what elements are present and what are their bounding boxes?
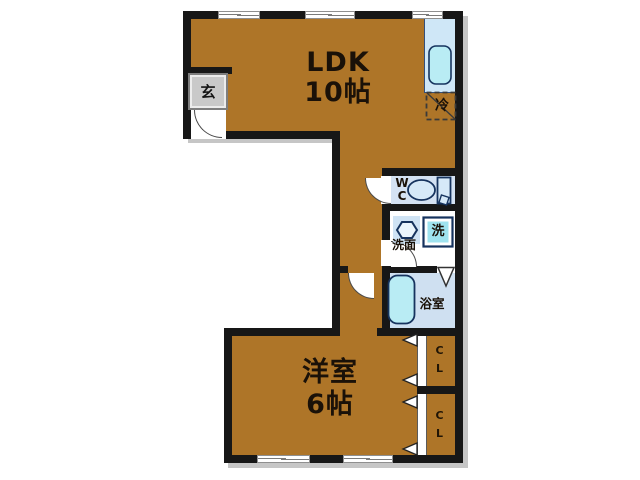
wall [390,204,455,211]
wall [455,11,463,463]
window [412,11,443,19]
bedroom-label: 洋室 [270,359,390,387]
wall-shadow-ldk [188,139,337,143]
window [343,455,393,463]
wc-label-line2: C [394,190,410,203]
wc-label: W C [394,177,410,203]
closet-upper-line1: C [431,342,448,360]
washing-machine-label: 洗 [429,225,447,239]
closet-upper-label: C L [431,342,448,378]
wall [332,131,340,336]
closet-bifold-door [417,336,427,386]
refrigerator-label: 冷 [432,99,452,114]
ldk-room-lower [340,131,455,168]
closet-lower-line1: C [431,407,448,425]
kitchen-counter [424,19,456,93]
closet-upper-line2: L [431,360,448,378]
closet-lower-line2: L [431,425,448,443]
wall [224,328,340,336]
floor-plan: 玄 LDK 10帖 洋室 6帖 W C 洗面 洗 浴室 冷 C L C L [0,0,640,480]
wall [377,328,463,336]
wall-shadow-bottom [228,463,468,468]
closet-lower-label: C L [431,407,448,443]
bedroom-size-label: 6帖 [270,391,390,419]
wall [332,266,348,273]
closet-bifold-door [417,394,427,455]
entrance-box: 玄 [188,73,228,110]
ldk-size-label: 10帖 [278,79,398,107]
wall [382,168,455,176]
window [257,455,310,463]
window [305,11,355,19]
washroom-label: 洗面 [383,239,425,252]
ldk-label: LDK [278,49,398,77]
wall [224,328,232,463]
bathroom-doorway [437,266,455,273]
window [218,11,260,19]
bathroom-label: 浴室 [411,297,453,310]
entrance-label: 玄 [200,81,215,102]
wall-shadow-right [463,16,468,468]
wall [417,386,463,394]
